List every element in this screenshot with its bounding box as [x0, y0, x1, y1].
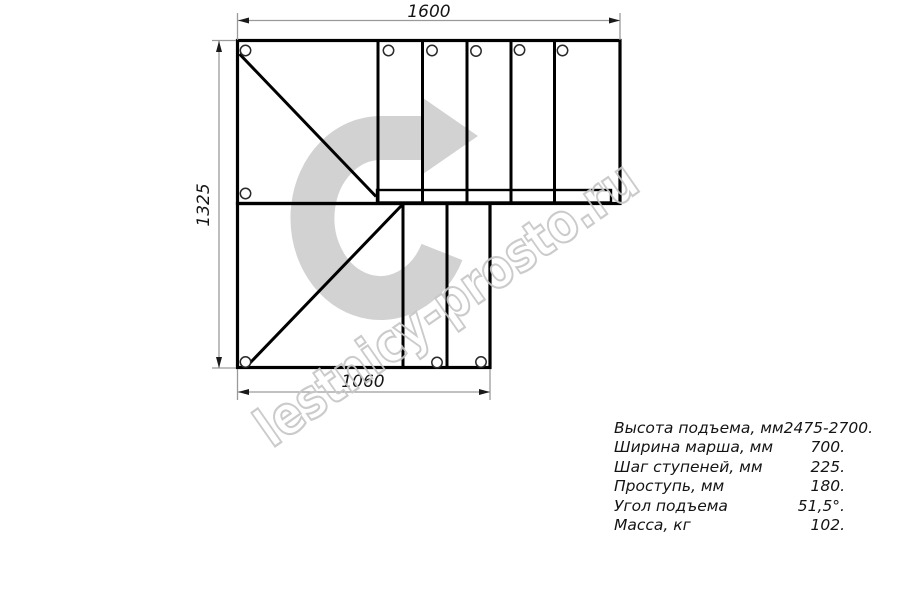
mounting-hole [240, 188, 250, 198]
spec-row-mass: Масса, кг 102. [614, 516, 845, 535]
mounting-hole [514, 45, 524, 55]
rotation-arrow-head [423, 98, 478, 174]
mounting-hole [427, 45, 437, 55]
mounting-hole [557, 45, 567, 55]
dim-arrow [609, 18, 620, 24]
spec-label: Масса, кг [614, 516, 691, 535]
spec-row-tread: Проступь, мм 180. [614, 477, 845, 496]
dim-arrow [238, 389, 249, 395]
spec-table: Высота подъема, мм 2475-2700. Ширина мар… [614, 419, 845, 535]
mounting-hole [240, 357, 250, 367]
dim-arrow [216, 41, 222, 52]
spec-value: 180. [810, 477, 845, 496]
mounting-hole [432, 357, 442, 367]
spec-label: Проступь, мм [614, 477, 724, 496]
spec-value: 51,5°. [798, 497, 845, 516]
spec-label: Ширина марша, мм [614, 438, 773, 457]
dim-arrow [479, 389, 490, 395]
spec-value: 102. [810, 516, 845, 535]
dim-label-left: 1325 [194, 183, 214, 226]
spec-value: 2475-2700. [784, 419, 873, 438]
spec-row-angle: Угол подъема 51,5°. [614, 497, 845, 516]
spec-row-step-pitch: Шаг ступеней, мм 225. [614, 458, 845, 477]
spec-value: 225. [810, 458, 845, 477]
spec-label: Шаг ступеней, мм [614, 458, 763, 477]
dim-arrow [238, 18, 249, 24]
mounting-hole [476, 357, 486, 367]
mounting-hole [240, 45, 250, 55]
mounting-hole [383, 45, 393, 55]
spec-value: 700. [810, 438, 845, 457]
mounting-hole [471, 46, 481, 56]
dim-arrow [216, 357, 222, 368]
dim-label-top: 1600 [407, 2, 450, 22]
spec-row-height: Высота подъема, мм 2475-2700. [614, 419, 845, 438]
spec-label: Угол подъема [614, 497, 728, 516]
spec-row-flight-width: Ширина марша, мм 700. [614, 438, 845, 457]
spec-label: Высота подъема, мм [614, 419, 784, 438]
